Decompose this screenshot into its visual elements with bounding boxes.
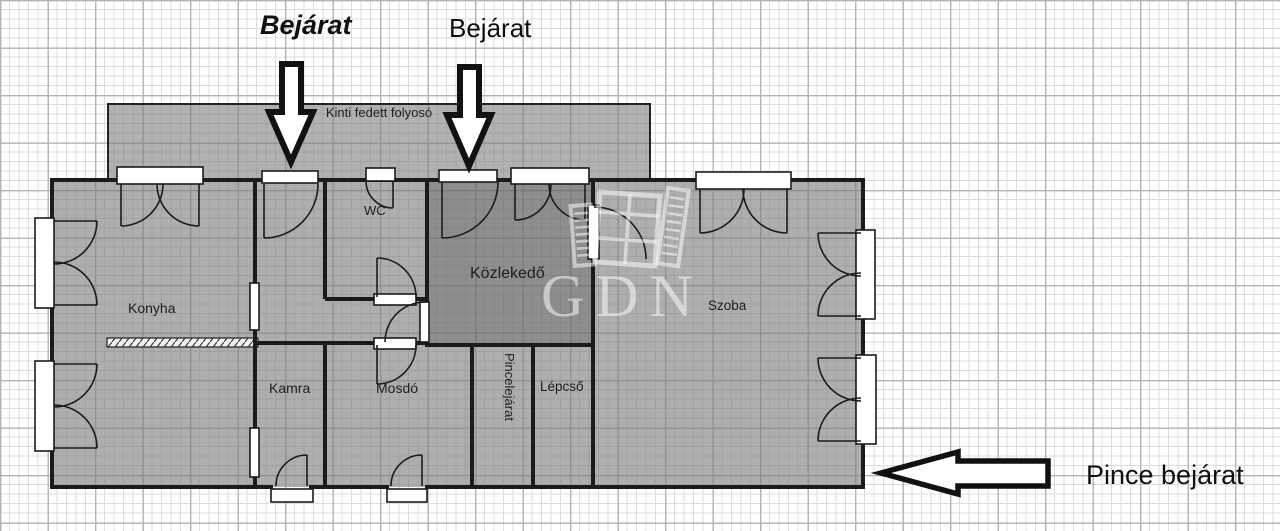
- kitchen-hall-opening: [250, 283, 259, 330]
- kitchen-counter: [107, 338, 258, 347]
- hallway-area: [427, 180, 593, 345]
- floor-plan-drawing: [0, 0, 1280, 531]
- kitchen-pantry-opening: [250, 428, 259, 477]
- floor-plan-canvas: GDN Bejárat Bejárat Kinti fedett folyosó…: [0, 0, 1280, 531]
